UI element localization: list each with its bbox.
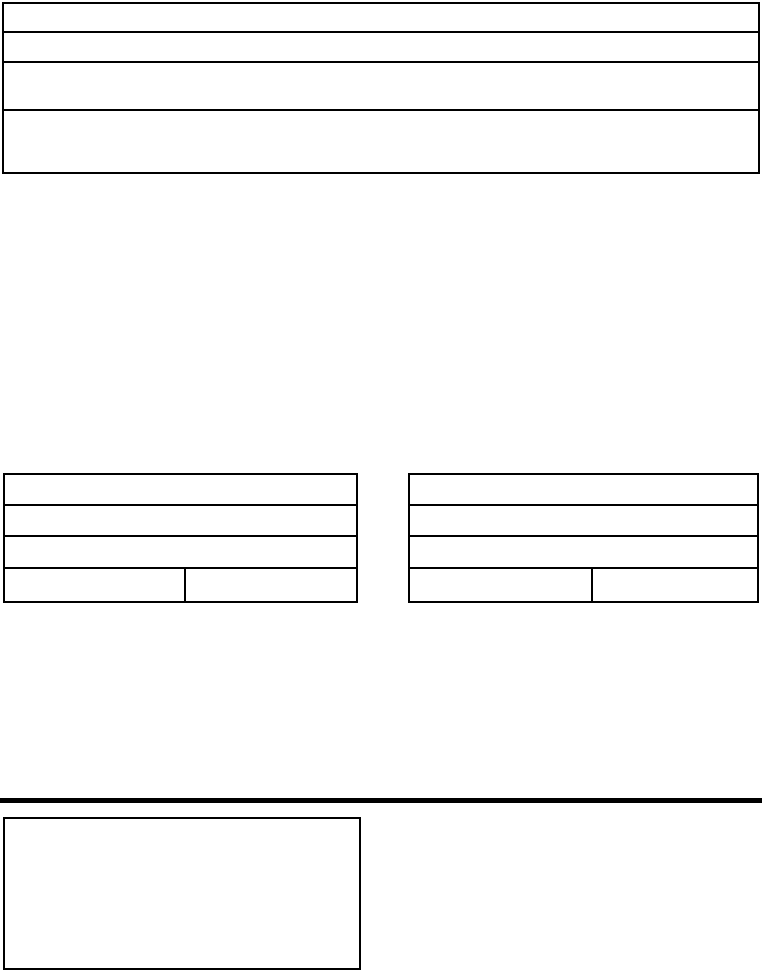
right-table-row-1-text xyxy=(410,475,757,480)
left-table-row-3-text xyxy=(5,537,356,542)
left-table-split-cell-left xyxy=(5,569,186,601)
right-table-split-cell-left xyxy=(410,569,593,601)
left-table-row-2 xyxy=(5,506,356,537)
document-page xyxy=(0,0,762,971)
header-table-row-3 xyxy=(4,63,758,111)
right-table-row-3 xyxy=(410,537,757,569)
left-table-row-2-text xyxy=(5,506,356,511)
right-table-split-row xyxy=(410,569,757,601)
left-table-split-row xyxy=(5,569,356,601)
header-table-row-2 xyxy=(4,33,758,63)
header-row-3-text xyxy=(4,63,758,68)
left-table-split-cell-right xyxy=(186,569,356,601)
header-row-1-text xyxy=(4,4,758,9)
footer-box xyxy=(3,817,361,970)
left-table-split-cell-right-text xyxy=(186,569,356,574)
header-row-2-text xyxy=(4,33,758,38)
right-table-row-2-text xyxy=(410,506,757,511)
header-table xyxy=(2,2,760,174)
left-table-row-3 xyxy=(5,537,356,569)
footer-box-text xyxy=(5,819,359,824)
right-table-row-2 xyxy=(410,506,757,537)
right-table-row-1 xyxy=(410,475,757,506)
header-table-row-4 xyxy=(4,111,758,172)
right-table-row-3-text xyxy=(410,537,757,542)
right-detail-table xyxy=(408,473,759,603)
right-table-split-cell-right-text xyxy=(593,569,757,574)
header-row-4-text xyxy=(4,111,758,116)
right-table-split-cell-left-text xyxy=(410,569,591,574)
left-table-split-cell-left-text xyxy=(5,569,184,574)
right-table-split-cell-right xyxy=(593,569,757,601)
header-table-row-1 xyxy=(4,4,758,33)
section-divider-rule xyxy=(0,798,762,803)
left-table-row-1 xyxy=(5,475,356,506)
left-detail-table xyxy=(3,473,358,603)
left-table-row-1-text xyxy=(5,475,356,480)
